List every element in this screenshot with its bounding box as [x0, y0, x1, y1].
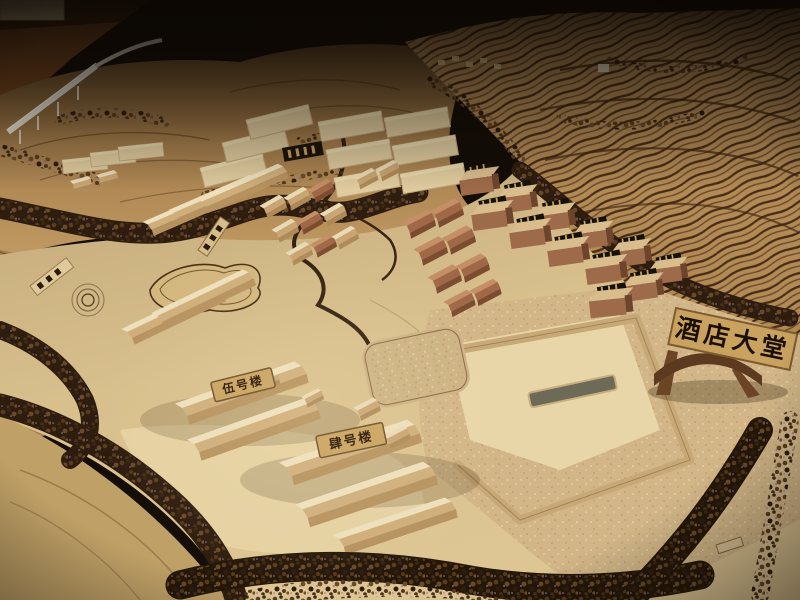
model-scene: 伍号楼 肆号楼 酒店大堂	[0, 0, 800, 600]
vignette-overlay	[0, 0, 800, 600]
scale-model-photo: 伍号楼 肆号楼 酒店大堂	[0, 0, 800, 600]
